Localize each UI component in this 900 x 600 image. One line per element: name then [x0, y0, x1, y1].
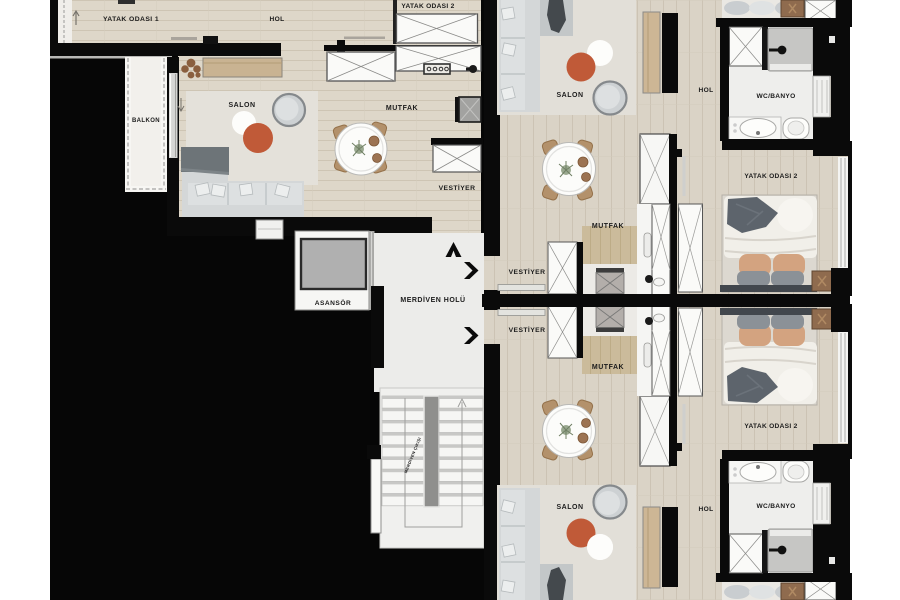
- svg-text:VESTİYER: VESTİYER: [439, 184, 476, 192]
- svg-text:HOL: HOL: [698, 87, 713, 94]
- svg-text:ASANSÖR: ASANSÖR: [315, 298, 351, 307]
- svg-text:MUTFAK: MUTFAK: [592, 364, 624, 371]
- svg-text:YATAK ODASI 1: YATAK ODASI 1: [103, 16, 159, 23]
- svg-text:MERDİVEN HOLÜ: MERDİVEN HOLÜ: [400, 295, 465, 304]
- svg-text:YATAK ODASI 2: YATAK ODASI 2: [744, 423, 797, 430]
- svg-text:YATAK ODASI 2: YATAK ODASI 2: [744, 173, 797, 180]
- svg-text:VESTİYER: VESTİYER: [509, 326, 546, 334]
- svg-text:WC/BANYO: WC/BANYO: [756, 93, 795, 100]
- svg-text:SALON: SALON: [557, 504, 584, 511]
- svg-text:YATAK ODASI 2: YATAK ODASI 2: [401, 3, 454, 10]
- svg-text:MUTFAK: MUTFAK: [386, 105, 418, 112]
- svg-text:SALON: SALON: [229, 102, 256, 109]
- svg-text:VESTİYER: VESTİYER: [509, 268, 546, 276]
- svg-text:SALON: SALON: [557, 92, 584, 99]
- svg-text:MUTFAK: MUTFAK: [592, 223, 624, 230]
- svg-text:WC/BANYO: WC/BANYO: [756, 503, 795, 510]
- svg-text:HOL: HOL: [698, 506, 713, 513]
- svg-text:HOL: HOL: [269, 16, 284, 23]
- svg-text:BALKON: BALKON: [132, 118, 160, 124]
